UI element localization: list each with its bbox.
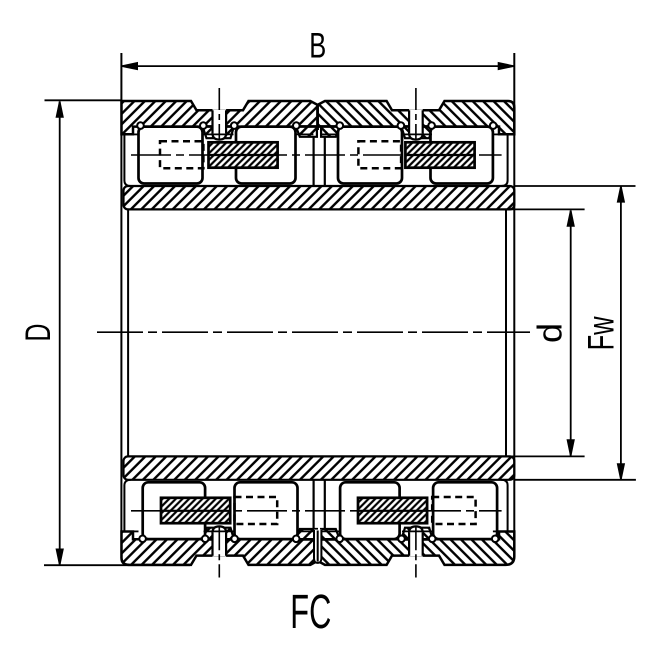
svg-text:d: d	[531, 323, 569, 343]
svg-text:Fw: Fw	[581, 316, 622, 350]
svg-text:D: D	[18, 324, 58, 342]
svg-text:B: B	[309, 25, 326, 65]
svg-text:FC: FC	[290, 586, 331, 639]
